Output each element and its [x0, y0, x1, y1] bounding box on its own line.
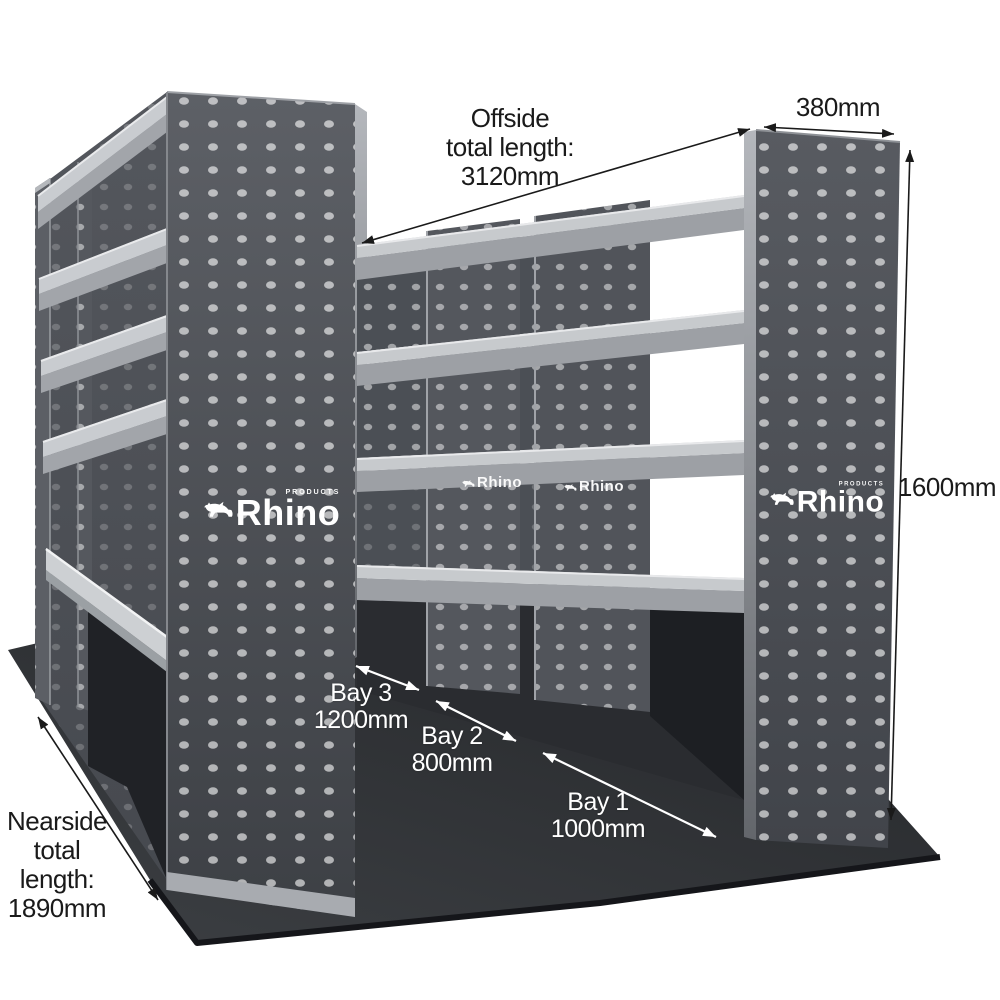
bay1-name: Bay 1 — [551, 789, 645, 816]
nearside-label-line4: 1890mm — [7, 894, 107, 923]
offside-label-line2: total length: — [446, 133, 574, 162]
rhino-icon — [770, 491, 795, 508]
products-caption: PRODUCTS — [286, 488, 341, 495]
products-caption: PRODUCTS — [839, 481, 885, 487]
nearside-label-line1: Nearside — [7, 807, 107, 836]
bay3-size: 1200mm — [314, 707, 408, 734]
offside-label-line3: 3120mm — [446, 162, 574, 191]
brand-name: Rhino — [236, 496, 340, 530]
depth-label: 380mm — [796, 93, 880, 122]
brand-name: Rhino — [477, 476, 522, 490]
nearside-label-line3: length: — [7, 865, 107, 894]
offside-label-line1: Offside — [446, 104, 574, 133]
brand-name: Rhino — [579, 480, 624, 494]
product-dimension-diagram: Offside total length: 3120mm 380mm 1600m… — [0, 0, 1000, 1000]
bay1-size: 1000mm — [551, 816, 645, 843]
brand-logo-divider-bay3: Rhino — [462, 476, 522, 490]
bay1-label: Bay 1 1000mm — [551, 789, 645, 843]
bay2-name: Bay 2 — [412, 723, 493, 750]
brand-logo-nearside-panel: PRODUCTS Rhino — [204, 488, 340, 530]
nearside-total-length-label: Nearside total length: 1890mm — [7, 807, 107, 923]
bay3-label: Bay 3 1200mm — [314, 680, 408, 734]
rhino-icon — [462, 479, 475, 488]
bay2-label: Bay 2 800mm — [412, 723, 493, 777]
rhino-icon — [564, 483, 577, 492]
rhino-icon — [204, 498, 234, 519]
bay3-name: Bay 3 — [314, 680, 408, 707]
offside-panel-return-edge — [744, 130, 756, 840]
brand-name: Rhino — [797, 488, 884, 517]
brand-logo-divider-bay1: Rhino — [564, 480, 624, 494]
brand-logo-offside-panel: PRODUCTS Rhino — [770, 481, 884, 517]
height-label: 1600mm — [898, 473, 996, 502]
bay2-size: 800mm — [412, 750, 493, 777]
offside-total-length-label: Offside total length: 3120mm — [446, 104, 574, 191]
nearside-label-line2: total — [7, 836, 107, 865]
